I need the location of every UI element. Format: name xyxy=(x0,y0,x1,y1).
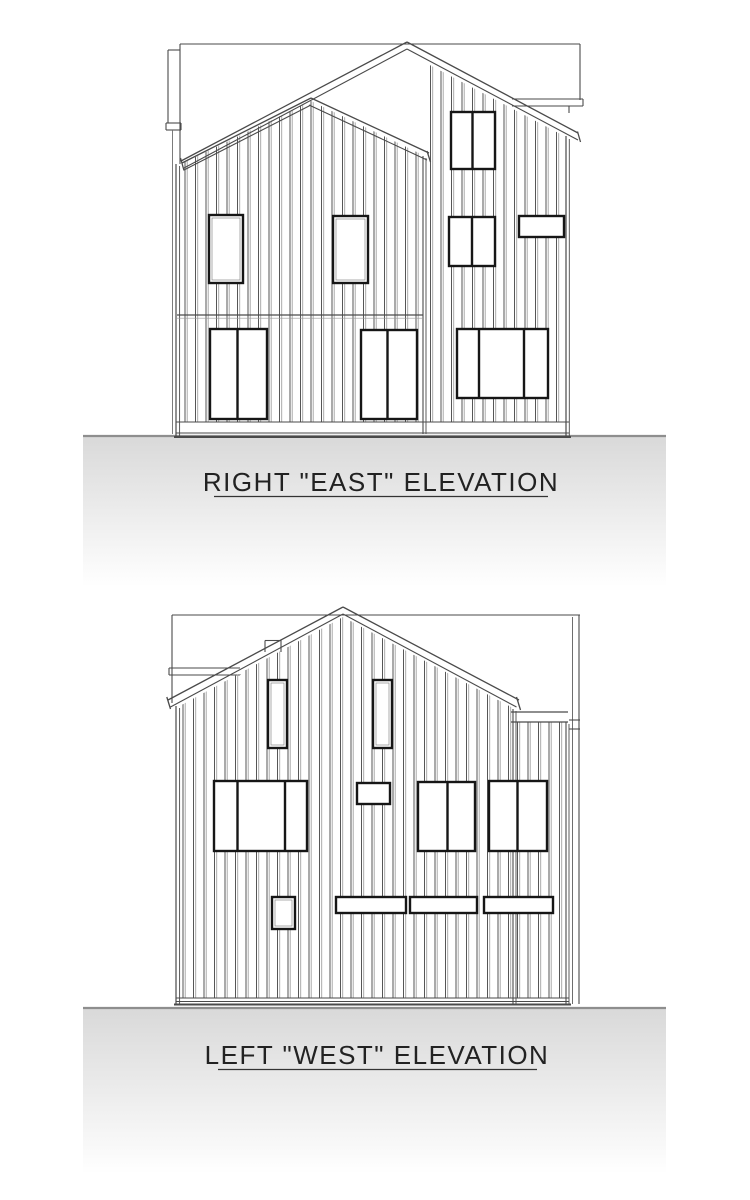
window xyxy=(333,216,368,283)
west-elevation-drawing xyxy=(83,607,666,1174)
ground xyxy=(83,1008,666,1174)
window xyxy=(410,897,477,913)
window xyxy=(336,897,406,913)
elevation-sheet: RIGHT "EAST" ELEVATION LEFT "WEST" ELEVA… xyxy=(0,0,750,1200)
west-elevation-caption: LEFT "WEST" ELEVATION xyxy=(205,1040,550,1070)
window xyxy=(519,216,564,237)
window xyxy=(484,897,553,913)
window xyxy=(214,781,307,851)
window xyxy=(357,783,390,804)
elevation-drawing-svg: RIGHT "EAST" ELEVATION LEFT "WEST" ELEVA… xyxy=(0,0,750,1200)
window xyxy=(272,897,295,929)
east-elevation-drawing xyxy=(83,42,666,587)
ground xyxy=(83,436,666,587)
east-elevation-caption: RIGHT "EAST" ELEVATION xyxy=(203,467,559,497)
window xyxy=(361,330,417,419)
window xyxy=(457,329,548,398)
window xyxy=(209,215,243,283)
